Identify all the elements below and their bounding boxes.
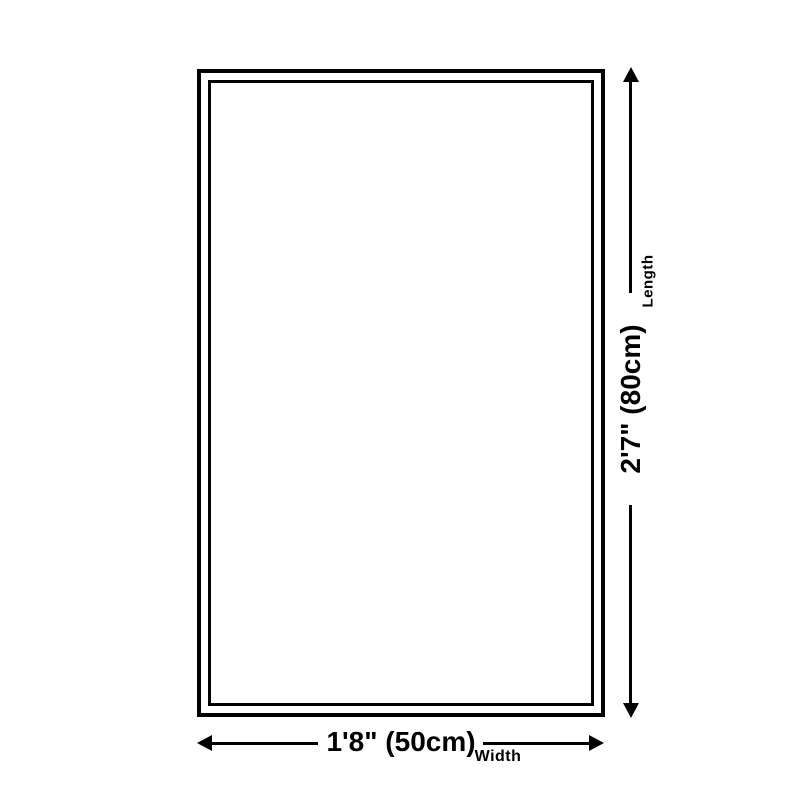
length-dimension-line-top	[629, 81, 632, 293]
size-diagram: Length 2'7" (80cm) 1'8" (50cm) Width	[0, 0, 800, 800]
arrow-left-icon	[197, 735, 212, 751]
arrow-up-icon	[623, 67, 639, 82]
width-label: Width	[475, 748, 522, 766]
arrow-down-icon	[623, 703, 639, 718]
item-outline-outer	[197, 69, 605, 717]
item-outline-inner	[208, 80, 594, 706]
length-dimension-line-bottom	[629, 505, 632, 705]
arrow-right-icon	[589, 735, 604, 751]
length-label: Length	[640, 255, 657, 308]
width-dimension-line-left	[211, 742, 318, 745]
width-dimension-line-right	[483, 742, 590, 745]
length-value: 2'7" (80cm)	[615, 324, 647, 473]
width-value: 1'8" (50cm)	[326, 726, 475, 758]
